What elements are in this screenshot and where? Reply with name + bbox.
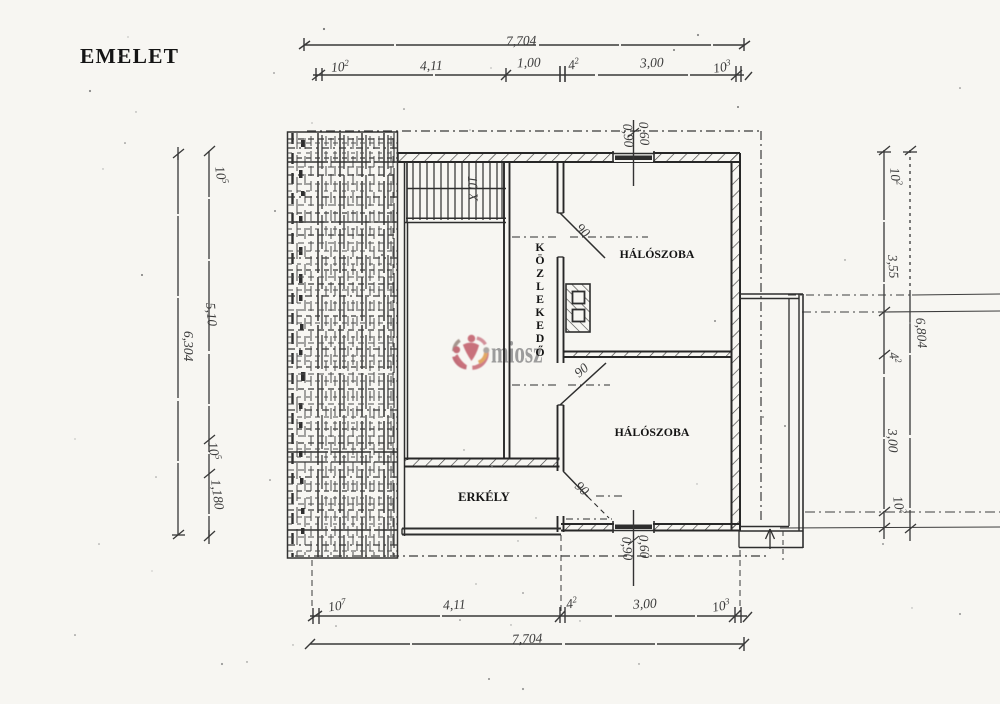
svg-text:K: K — [535, 240, 545, 254]
svg-text:0,60: 0,60 — [636, 534, 653, 559]
svg-text:Ő: Ő — [535, 344, 544, 359]
svg-text:3,55: 3,55 — [885, 253, 902, 279]
svg-text:E: E — [536, 318, 544, 332]
svg-text:5,10: 5,10 — [203, 302, 220, 327]
svg-text:10 X: 10 X — [465, 176, 481, 202]
svg-text:L: L — [536, 279, 544, 293]
svg-text:HÁLÓSZOBA: HÁLÓSZOBA — [620, 247, 695, 261]
svg-text:1,00: 1,00 — [517, 55, 541, 71]
svg-text:Ö: Ö — [535, 253, 544, 267]
svg-text:7,704: 7,704 — [506, 33, 537, 49]
svg-text:6,804: 6,804 — [913, 317, 930, 349]
svg-text:0,60: 0,60 — [636, 121, 653, 146]
svg-text:3,00: 3,00 — [885, 428, 901, 453]
svg-text:0,90: 0,90 — [620, 123, 637, 148]
svg-text:HÁLÓSZOBA: HÁLÓSZOBA — [615, 425, 690, 439]
svg-text:7,704: 7,704 — [512, 631, 543, 647]
svg-text:K: K — [535, 305, 545, 319]
svg-text:0,90: 0,90 — [619, 536, 636, 561]
svg-text:EMELET: EMELET — [80, 44, 179, 68]
svg-text:6,304: 6,304 — [181, 331, 196, 362]
svg-text:3,00: 3,00 — [639, 55, 664, 71]
svg-text:Z: Z — [536, 266, 544, 280]
svg-text:4,11: 4,11 — [420, 58, 443, 74]
svg-text:E: E — [536, 292, 544, 306]
svg-text:4,11: 4,11 — [443, 597, 466, 613]
svg-text:D: D — [536, 331, 545, 345]
svg-text:3,00: 3,00 — [632, 595, 658, 611]
svg-text:ERKÉLY: ERKÉLY — [458, 490, 510, 504]
